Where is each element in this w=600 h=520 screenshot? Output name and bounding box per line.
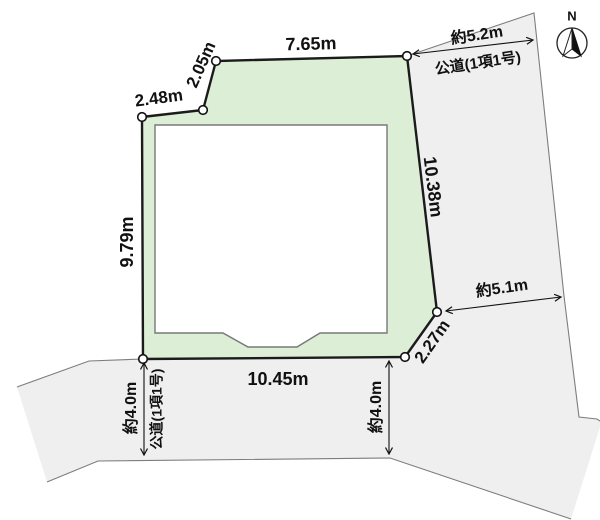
north-compass-icon: N	[557, 8, 587, 58]
plot-diagram: 7.65m 2.05m 2.48m 9.79m 10.38m 2.27m 10.…	[0, 0, 600, 520]
dim-top-label: 7.65m	[285, 33, 337, 54]
dim-upper-left-label: 2.48m	[134, 85, 184, 110]
vertex-marker	[138, 113, 147, 122]
vertex-marker	[433, 308, 442, 317]
dim-left-label: 9.79m	[117, 216, 137, 267]
southwest-road-name-label: 公道(1項1号)	[149, 369, 165, 450]
building-footprint	[155, 125, 387, 347]
vertex-marker	[139, 355, 148, 364]
plot-diagram-svg: 7.65m 2.05m 2.48m 9.79m 10.38m 2.27m 10.…	[0, 0, 600, 520]
compass-n-label: N	[567, 8, 576, 23]
vertex-marker	[401, 353, 410, 362]
southwest-road-width-label: 約4.0m	[121, 382, 140, 434]
vertex-marker	[403, 52, 412, 61]
vertex-marker	[199, 106, 208, 115]
south-road-width-label: 約4.0m	[366, 381, 385, 433]
dim-bottom-label: 10.45m	[247, 369, 308, 389]
